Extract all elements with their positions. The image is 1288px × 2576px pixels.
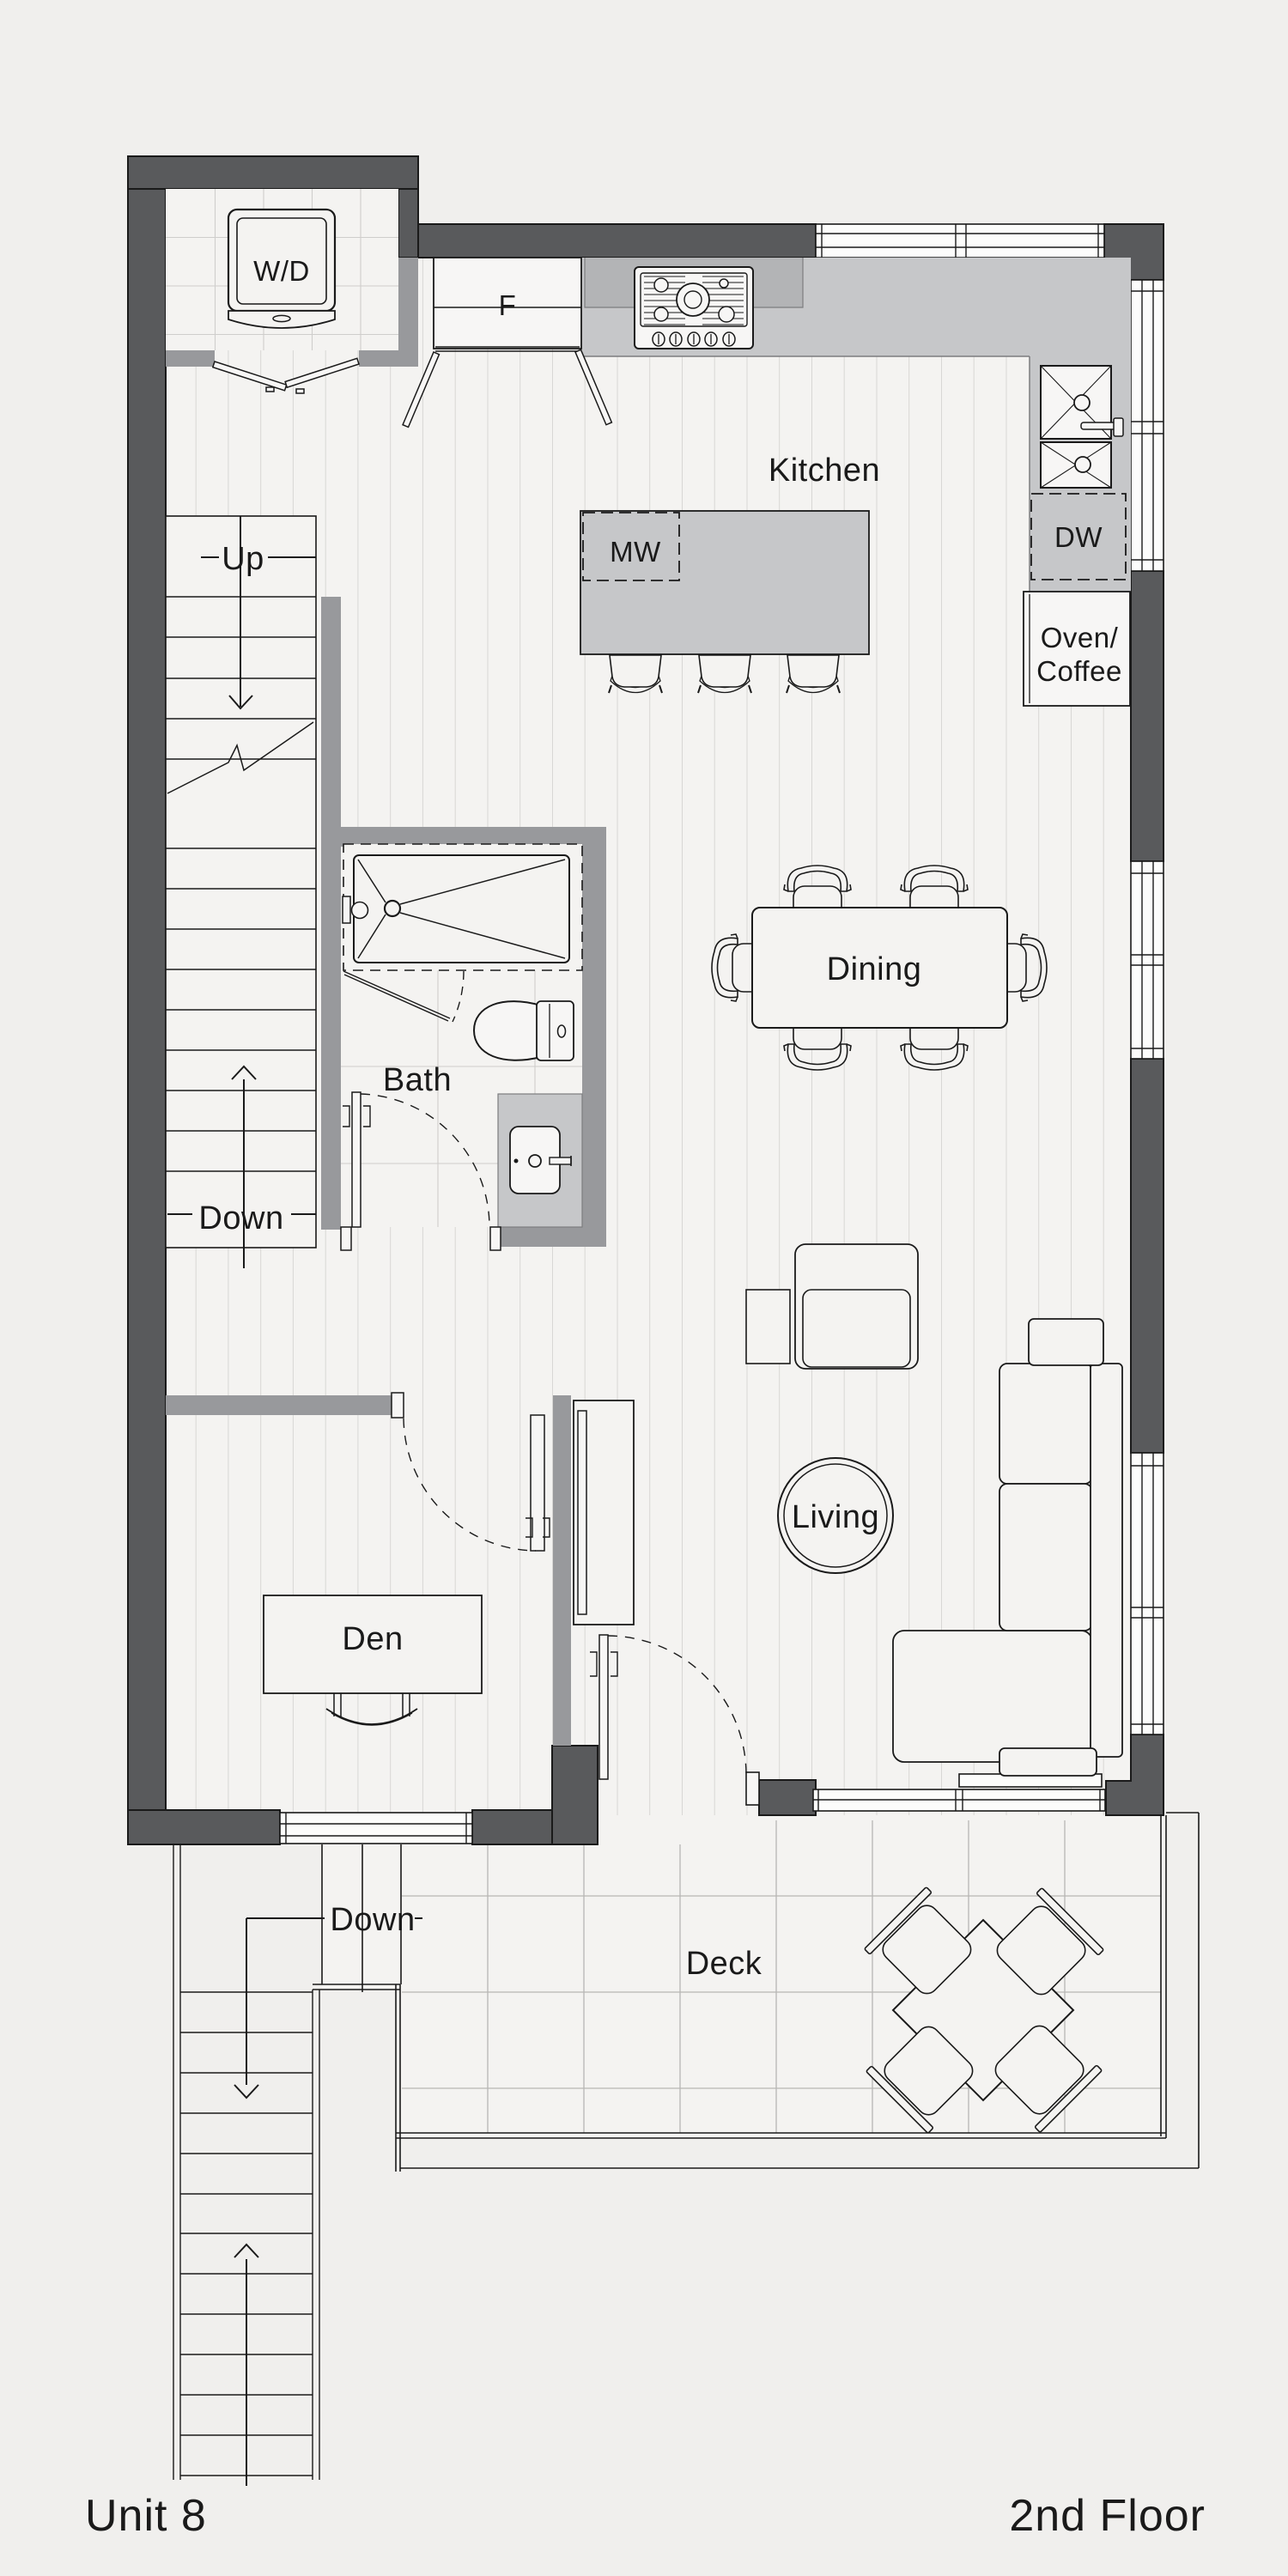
svg-text:W/D: W/D [253,255,310,287]
svg-text:Down: Down [330,1902,415,1938]
svg-text:Dining: Dining [827,951,922,987]
svg-text:2nd Floor: 2nd Floor [1009,2491,1206,2541]
svg-text:Living: Living [792,1499,879,1535]
svg-text:Unit 8: Unit 8 [85,2491,207,2541]
svg-text:Down: Down [198,1200,283,1236]
svg-text:Den: Den [342,1621,403,1657]
svg-text:Kitchen: Kitchen [769,453,880,489]
svg-text:MW: MW [610,536,661,568]
svg-text:Coffee: Coffee [1036,655,1122,687]
svg-text:Bath: Bath [383,1062,452,1098]
svg-text:F: F [499,289,517,321]
svg-text:Deck: Deck [686,1946,762,1982]
svg-text:Up: Up [222,541,264,577]
svg-text:DW: DW [1054,521,1103,553]
svg-text:Oven/: Oven/ [1041,622,1119,653]
